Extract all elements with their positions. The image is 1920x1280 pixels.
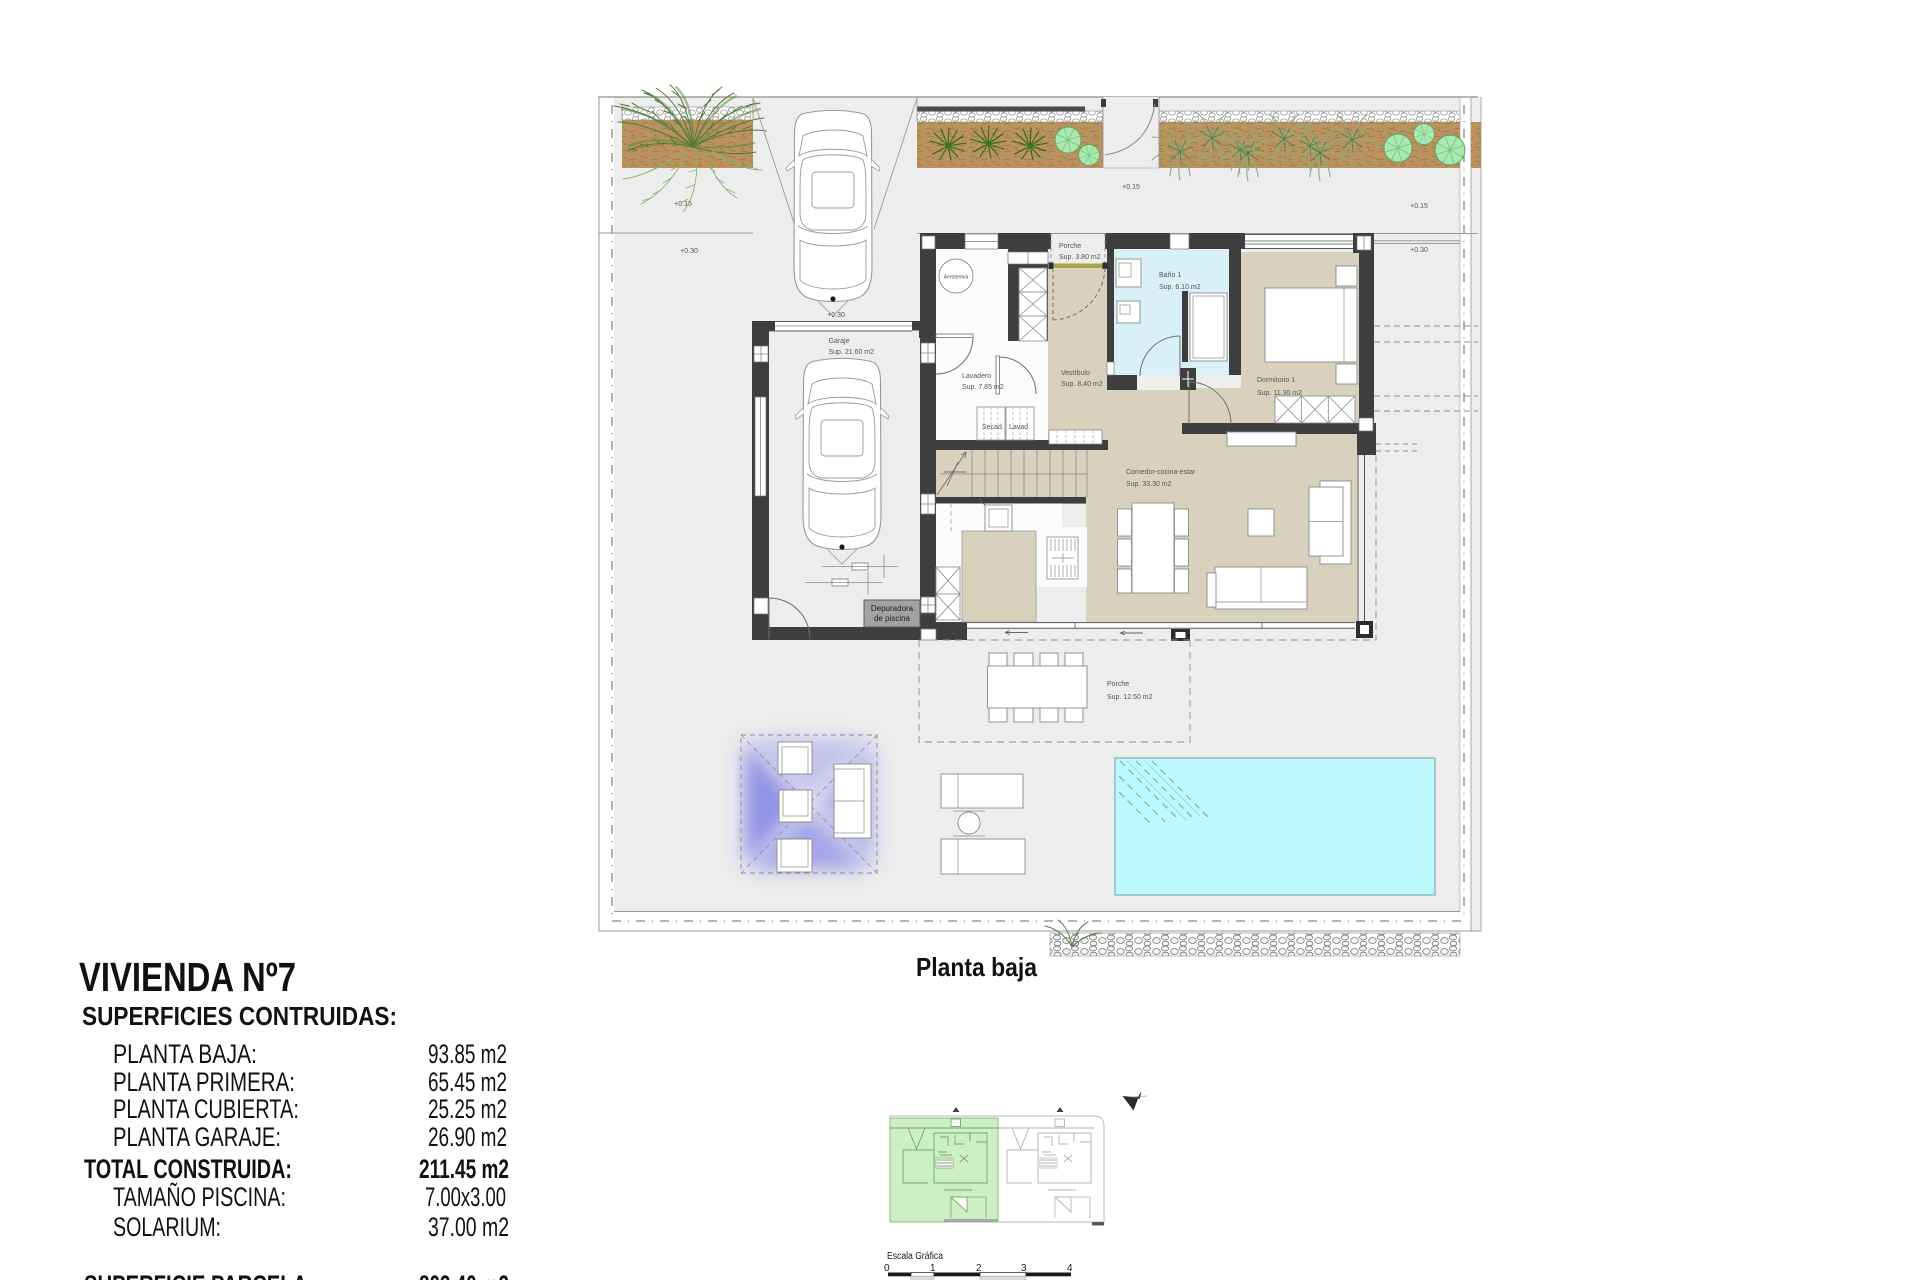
svg-text:65.45 m2: 65.45 m2 [428,1067,507,1097]
svg-text:Sup. 11.30 m2: Sup. 11.30 m2 [1257,390,1302,397]
svg-text:Sup. 12.50 m2: Sup. 12.50 m2 [1107,694,1153,701]
svg-text:Comedor-cocina-estar: Comedor-cocina-estar [1126,469,1196,476]
svg-text:Planta baja: Planta baja [916,952,1037,982]
svg-text:Sup. 21.60 m2: Sup. 21.60 m2 [829,349,875,356]
svg-text:Lavad.: Lavad. [1009,424,1030,431]
svg-text:Garaje: Garaje [829,338,850,345]
svg-text:VIVIENDA Nº7: VIVIENDA Nº7 [79,954,296,1000]
svg-text:0: 0 [884,1263,890,1274]
svg-text:PLANTA GARAJE:: PLANTA GARAJE: [113,1122,281,1152]
svg-text:Sup. 3.80 m2: Sup. 3.80 m2 [1059,254,1101,261]
svg-text:+0.30: +0.30 [680,248,698,255]
svg-text:TAMAÑO PISCINA:: TAMAÑO PISCINA: [113,1181,286,1212]
svg-text:Sup. 8.40 m2: Sup. 8.40 m2 [1061,381,1103,388]
svg-text:Secad.: Secad. [982,424,1004,431]
svg-text:Lavadero: Lavadero [962,373,991,380]
svg-text:802.40 m2: 802.40 m2 [419,1270,509,1280]
svg-text:PLANTA BAJA:: PLANTA BAJA: [113,1039,257,1069]
svg-text:TOTAL CONSTRUIDA:: TOTAL CONSTRUIDA: [84,1154,292,1184]
svg-text:SUPERFICIES CONTRUIDAS:: SUPERFICIES CONTRUIDAS: [82,1001,397,1031]
svg-text:+0.15: +0.15 [1410,203,1428,210]
svg-text:Vestíbulo: Vestíbulo [1061,370,1090,377]
svg-text:Aerotermia: Aerotermia [944,275,969,281]
svg-text:PLANTA CUBIERTA:: PLANTA CUBIERTA: [113,1094,299,1124]
svg-text:Depuradora: Depuradora [871,604,914,613]
svg-text:26.90 m2: 26.90 m2 [428,1122,507,1152]
svg-text:Dormitorio 1: Dormitorio 1 [1257,377,1295,384]
svg-text:Sup. 7.85 m2: Sup. 7.85 m2 [962,384,1004,391]
svg-text:PLANTA PRIMERA:: PLANTA PRIMERA: [113,1067,295,1097]
svg-text:Sup. 33.30 m2: Sup. 33.30 m2 [1126,481,1172,488]
svg-text:Porche: Porche [1107,681,1129,688]
svg-text:25.25 m2: 25.25 m2 [428,1094,507,1124]
svg-text:211.45 m2: 211.45 m2 [419,1154,509,1184]
svg-text:SOLARIUM:: SOLARIUM: [113,1212,221,1242]
svg-text:SUPERFICIE PARCELA:: SUPERFICIE PARCELA: [84,1270,314,1280]
svg-text:93.85 m2: 93.85 m2 [428,1039,507,1069]
svg-text:7.00x3.00: 7.00x3.00 [425,1182,506,1212]
svg-text:4: 4 [1067,1263,1073,1274]
svg-text:Escala Gráfica: Escala Gráfica [887,1251,943,1262]
svg-text:+0.15: +0.15 [1122,184,1140,191]
svg-text:+0.30: +0.30 [1410,247,1428,254]
svg-text:37.00 m2: 37.00 m2 [428,1212,509,1242]
svg-text:Porche: Porche [1059,243,1081,250]
svg-text:Sup. 6.10 m2: Sup. 6.10 m2 [1159,284,1201,291]
svg-text:Baño 1: Baño 1 [1159,272,1181,279]
svg-text:de piscina: de piscina [874,614,911,623]
